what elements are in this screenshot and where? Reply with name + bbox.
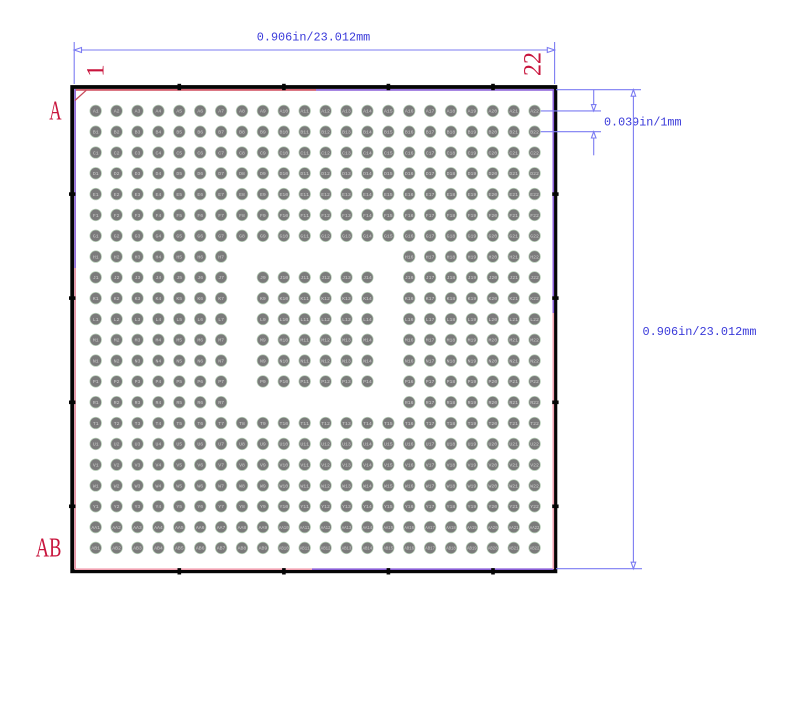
svg-text:B18: B18 [447, 130, 456, 136]
svg-text:J9: J9 [260, 275, 266, 281]
svg-text:AB20: AB20 [488, 546, 498, 552]
svg-text:R17: R17 [426, 400, 435, 406]
svg-text:T13: T13 [342, 421, 351, 427]
svg-text:E3: E3 [135, 192, 141, 198]
svg-text:N2: N2 [114, 358, 120, 364]
svg-text:AB22: AB22 [530, 546, 540, 552]
svg-text:P12: P12 [321, 379, 330, 385]
svg-text:L10: L10 [279, 317, 288, 323]
svg-text:B20: B20 [488, 130, 497, 136]
svg-text:P7: P7 [218, 379, 224, 385]
svg-text:C6: C6 [197, 150, 203, 156]
svg-text:AA14: AA14 [363, 525, 373, 531]
svg-text:E20: E20 [488, 192, 497, 198]
svg-text:K13: K13 [342, 296, 351, 302]
svg-text:Y6: Y6 [197, 504, 203, 510]
svg-text:Y19: Y19 [468, 504, 477, 510]
svg-text:T14: T14 [363, 421, 372, 427]
svg-text:Y15: Y15 [384, 504, 393, 510]
svg-text:P6: P6 [197, 379, 203, 385]
svg-text:W5: W5 [176, 483, 182, 489]
svg-text:A3: A3 [135, 109, 141, 115]
svg-text:C2: C2 [114, 150, 120, 156]
svg-text:P2: P2 [114, 379, 120, 385]
svg-text:V10: V10 [279, 463, 288, 469]
svg-text:D2: D2 [114, 171, 120, 177]
svg-text:G6: G6 [197, 234, 203, 240]
svg-text:J17: J17 [426, 275, 435, 281]
svg-text:AA21: AA21 [509, 525, 519, 531]
svg-text:AB9: AB9 [259, 546, 268, 552]
svg-text:AA19: AA19 [467, 525, 477, 531]
svg-text:P11: P11 [300, 379, 309, 385]
svg-text:C10: C10 [279, 150, 288, 156]
svg-text:W16: W16 [405, 483, 414, 489]
svg-text:A22: A22 [530, 109, 539, 115]
svg-text:N6: N6 [197, 358, 203, 364]
svg-text:G11: G11 [300, 234, 309, 240]
svg-text:C11: C11 [300, 150, 309, 156]
svg-text:Y5: Y5 [176, 504, 182, 510]
svg-text:C18: C18 [447, 150, 456, 156]
svg-text:N3: N3 [135, 358, 141, 364]
svg-text:J13: J13 [342, 275, 351, 281]
svg-text:L21: L21 [509, 317, 518, 323]
svg-text:A15: A15 [384, 109, 393, 115]
svg-text:D5: D5 [176, 171, 182, 177]
svg-text:B4: B4 [156, 130, 162, 136]
svg-text:W8: W8 [239, 483, 245, 489]
svg-text:F3: F3 [135, 213, 141, 219]
svg-text:L22: L22 [530, 317, 539, 323]
svg-text:M12: M12 [321, 338, 330, 344]
svg-text:AB10: AB10 [279, 546, 289, 552]
svg-text:B3: B3 [135, 130, 141, 136]
svg-text:AA3: AA3 [133, 525, 142, 531]
svg-text:AB16: AB16 [404, 546, 414, 552]
svg-text:U1: U1 [93, 442, 99, 448]
svg-text:U19: U19 [468, 442, 477, 448]
svg-text:J18: J18 [447, 275, 456, 281]
svg-text:N22: N22 [530, 358, 539, 364]
svg-text:AA4: AA4 [154, 525, 163, 531]
svg-text:AA1: AA1 [91, 525, 100, 531]
svg-text:T6: T6 [197, 421, 203, 427]
svg-text:B19: B19 [468, 130, 477, 136]
svg-text:W10: W10 [279, 483, 288, 489]
svg-text:P19: P19 [468, 379, 477, 385]
svg-text:F9: F9 [260, 213, 266, 219]
svg-text:A6: A6 [197, 109, 203, 115]
svg-text:A7: A7 [218, 109, 224, 115]
svg-text:G21: G21 [509, 234, 518, 240]
svg-text:D4: D4 [156, 171, 162, 177]
svg-text:U16: U16 [405, 442, 414, 448]
svg-text:N5: N5 [176, 358, 182, 364]
svg-text:AA10: AA10 [279, 525, 289, 531]
svg-text:N19: N19 [468, 358, 477, 364]
svg-text:AA17: AA17 [425, 525, 435, 531]
svg-text:C19: C19 [468, 150, 477, 156]
svg-text:AA12: AA12 [321, 525, 331, 531]
svg-text:AB3: AB3 [133, 546, 142, 552]
svg-text:E18: E18 [447, 192, 456, 198]
svg-text:D12: D12 [321, 171, 330, 177]
svg-text:P18: P18 [447, 379, 456, 385]
svg-text:G9: G9 [260, 234, 266, 240]
svg-text:V7: V7 [218, 463, 224, 469]
svg-text:V20: V20 [488, 463, 497, 469]
svg-text:H22: H22 [530, 254, 539, 260]
svg-text:T2: T2 [114, 421, 120, 427]
svg-text:G7: G7 [218, 234, 224, 240]
svg-text:B5: B5 [176, 130, 182, 136]
svg-text:P20: P20 [488, 379, 497, 385]
svg-text:A: A [49, 95, 62, 125]
svg-text:AA16: AA16 [404, 525, 414, 531]
svg-text:R16: R16 [405, 400, 414, 406]
svg-text:N1: N1 [93, 358, 99, 364]
svg-text:C20: C20 [488, 150, 497, 156]
svg-text:W17: W17 [426, 483, 435, 489]
svg-text:AB19: AB19 [467, 546, 477, 552]
svg-text:Y3: Y3 [135, 504, 141, 510]
svg-text:T1: T1 [93, 421, 99, 427]
svg-text:E7: E7 [218, 192, 224, 198]
svg-text:T3: T3 [135, 421, 141, 427]
svg-text:AB8: AB8 [238, 546, 247, 552]
svg-text:AA15: AA15 [384, 525, 394, 531]
svg-text:K18: K18 [447, 296, 456, 302]
svg-text:E21: E21 [509, 192, 518, 198]
svg-text:AB1: AB1 [91, 546, 100, 552]
svg-text:P22: P22 [530, 379, 539, 385]
svg-text:C8: C8 [239, 150, 245, 156]
svg-text:J3: J3 [135, 275, 141, 281]
svg-text:D10: D10 [279, 171, 288, 177]
svg-text:Y9: Y9 [260, 504, 266, 510]
svg-text:W12: W12 [321, 483, 330, 489]
svg-text:F11: F11 [300, 213, 309, 219]
svg-text:K2: K2 [114, 296, 120, 302]
svg-text:M6: M6 [197, 338, 203, 344]
svg-text:T5: T5 [176, 421, 182, 427]
svg-text:H1: H1 [93, 254, 99, 260]
svg-text:Y4: Y4 [156, 504, 162, 510]
svg-text:Y2: Y2 [114, 504, 120, 510]
svg-text:A8: A8 [239, 109, 245, 115]
svg-text:N11: N11 [300, 358, 309, 364]
svg-text:V14: V14 [363, 463, 372, 469]
svg-text:V5: V5 [176, 463, 182, 469]
svg-text:M20: M20 [488, 338, 497, 344]
svg-text:V3: V3 [135, 463, 141, 469]
svg-text:Y7: Y7 [218, 504, 224, 510]
svg-text:L4: L4 [156, 317, 162, 323]
svg-text:B15: B15 [384, 130, 393, 136]
svg-text:AB6: AB6 [196, 546, 205, 552]
svg-text:A10: A10 [279, 109, 288, 115]
svg-text:L11: L11 [300, 317, 309, 323]
svg-text:U15: U15 [384, 442, 393, 448]
svg-text:N9: N9 [260, 358, 266, 364]
svg-text:M7: M7 [218, 338, 224, 344]
svg-text:D8: D8 [239, 171, 245, 177]
svg-text:A5: A5 [176, 109, 182, 115]
svg-text:A1: A1 [93, 109, 99, 115]
svg-text:V9: V9 [260, 463, 266, 469]
svg-text:E16: E16 [405, 192, 414, 198]
svg-text:U11: U11 [300, 442, 309, 448]
svg-text:T8: T8 [239, 421, 245, 427]
svg-text:P3: P3 [135, 379, 141, 385]
svg-text:U4: U4 [156, 442, 162, 448]
svg-text:E8: E8 [239, 192, 245, 198]
svg-text:F18: F18 [447, 213, 456, 219]
svg-text:D13: D13 [342, 171, 351, 177]
svg-text:J14: J14 [363, 275, 372, 281]
svg-text:R2: R2 [114, 400, 120, 406]
svg-text:J4: J4 [156, 275, 162, 281]
svg-text:AA9: AA9 [259, 525, 268, 531]
svg-text:AA20: AA20 [488, 525, 498, 531]
svg-text:N10: N10 [279, 358, 288, 364]
svg-text:B11: B11 [300, 130, 309, 136]
svg-text:U5: U5 [176, 442, 182, 448]
svg-text:AA22: AA22 [530, 525, 540, 531]
svg-text:D20: D20 [488, 171, 497, 177]
svg-text:L3: L3 [135, 317, 141, 323]
svg-text:R22: R22 [530, 400, 539, 406]
svg-text:A4: A4 [156, 109, 162, 115]
svg-text:N12: N12 [321, 358, 330, 364]
svg-text:U2: U2 [114, 442, 120, 448]
svg-text:Y13: Y13 [342, 504, 351, 510]
svg-text:J19: J19 [468, 275, 477, 281]
svg-text:K20: K20 [488, 296, 497, 302]
svg-text:G14: G14 [363, 234, 372, 240]
svg-text:P9: P9 [260, 379, 266, 385]
svg-text:P21: P21 [509, 379, 518, 385]
svg-text:A2: A2 [114, 109, 120, 115]
svg-text:J20: J20 [488, 275, 497, 281]
svg-text:E19: E19 [468, 192, 477, 198]
svg-text:M16: M16 [405, 338, 414, 344]
svg-text:V1: V1 [93, 463, 99, 469]
svg-text:E5: E5 [176, 192, 182, 198]
svg-text:J5: J5 [176, 275, 182, 281]
svg-text:T21: T21 [509, 421, 518, 427]
svg-text:C15: C15 [384, 150, 393, 156]
svg-text:P16: P16 [405, 379, 414, 385]
svg-text:D16: D16 [405, 171, 414, 177]
svg-text:N16: N16 [405, 358, 414, 364]
svg-text:N13: N13 [342, 358, 351, 364]
svg-text:T7: T7 [218, 421, 224, 427]
svg-text:F10: F10 [279, 213, 288, 219]
svg-text:L20: L20 [488, 317, 497, 323]
svg-text:F17: F17 [426, 213, 435, 219]
svg-text:E2: E2 [114, 192, 120, 198]
svg-text:C17: C17 [426, 150, 435, 156]
svg-text:T9: T9 [260, 421, 266, 427]
svg-text:Y16: Y16 [405, 504, 414, 510]
svg-text:V19: V19 [468, 463, 477, 469]
svg-text:AB14: AB14 [363, 546, 373, 552]
svg-text:V8: V8 [239, 463, 245, 469]
svg-text:T22: T22 [530, 421, 539, 427]
svg-text:E13: E13 [342, 192, 351, 198]
svg-text:D11: D11 [300, 171, 309, 177]
svg-text:G12: G12 [321, 234, 330, 240]
svg-text:L2: L2 [114, 317, 120, 323]
svg-text:P17: P17 [426, 379, 435, 385]
svg-text:AB15: AB15 [384, 546, 394, 552]
svg-text:G20: G20 [488, 234, 497, 240]
svg-text:F15: F15 [384, 213, 393, 219]
svg-text:W7: W7 [218, 483, 224, 489]
svg-text:L6: L6 [197, 317, 203, 323]
svg-text:AA5: AA5 [175, 525, 184, 531]
svg-text:W21: W21 [509, 483, 518, 489]
svg-text:H2: H2 [114, 254, 120, 260]
svg-text:T20: T20 [488, 421, 497, 427]
svg-text:M17: M17 [426, 338, 435, 344]
svg-text:R7: R7 [218, 400, 224, 406]
svg-text:U6: U6 [197, 442, 203, 448]
svg-text:J12: J12 [321, 275, 330, 281]
svg-text:B14: B14 [363, 130, 372, 136]
svg-text:AA8: AA8 [238, 525, 247, 531]
svg-text:U22: U22 [530, 442, 539, 448]
svg-text:B1: B1 [93, 130, 99, 136]
svg-text:N21: N21 [509, 358, 518, 364]
svg-text:U13: U13 [342, 442, 351, 448]
svg-text:U9: U9 [260, 442, 266, 448]
svg-text:U8: U8 [239, 442, 245, 448]
svg-text:G13: G13 [342, 234, 351, 240]
svg-text:C9: C9 [260, 150, 266, 156]
svg-text:G4: G4 [156, 234, 162, 240]
svg-text:AB13: AB13 [342, 546, 352, 552]
svg-text:W4: W4 [156, 483, 162, 489]
svg-text:B2: B2 [114, 130, 120, 136]
svg-text:1: 1 [82, 64, 109, 77]
svg-text:V22: V22 [530, 463, 539, 469]
svg-text:L5: L5 [176, 317, 182, 323]
svg-text:L17: L17 [426, 317, 435, 323]
svg-text:N20: N20 [488, 358, 497, 364]
svg-text:C4: C4 [156, 150, 162, 156]
svg-text:Y21: Y21 [509, 504, 518, 510]
svg-text:J7: J7 [218, 275, 224, 281]
svg-text:J10: J10 [279, 275, 288, 281]
svg-text:G22: G22 [530, 234, 539, 240]
svg-text:E1: E1 [93, 192, 99, 198]
svg-text:P5: P5 [176, 379, 182, 385]
svg-text:F2: F2 [114, 213, 120, 219]
svg-text:D6: D6 [197, 171, 203, 177]
svg-text:R21: R21 [509, 400, 518, 406]
svg-text:22: 22 [520, 52, 547, 76]
svg-text:F8: F8 [239, 213, 245, 219]
svg-text:D7: D7 [218, 171, 224, 177]
svg-text:U3: U3 [135, 442, 141, 448]
svg-text:D15: D15 [384, 171, 393, 177]
svg-text:K19: K19 [468, 296, 477, 302]
svg-text:R19: R19 [468, 400, 477, 406]
svg-text:AB: AB [36, 532, 62, 562]
svg-text:D21: D21 [509, 171, 518, 177]
svg-text:C14: C14 [363, 150, 372, 156]
svg-text:F12: F12 [321, 213, 330, 219]
svg-text:P4: P4 [156, 379, 162, 385]
svg-text:R4: R4 [156, 400, 162, 406]
svg-text:Y8: Y8 [239, 504, 245, 510]
svg-text:F6: F6 [197, 213, 203, 219]
svg-text:K9: K9 [260, 296, 266, 302]
svg-text:P14: P14 [363, 379, 372, 385]
svg-text:A20: A20 [488, 109, 497, 115]
svg-text:J6: J6 [197, 275, 203, 281]
svg-text:V2: V2 [114, 463, 120, 469]
svg-text:B6: B6 [197, 130, 203, 136]
svg-text:M2: M2 [114, 338, 120, 344]
svg-text:V6: V6 [197, 463, 203, 469]
svg-text:Y17: Y17 [426, 504, 435, 510]
svg-text:H3: H3 [135, 254, 141, 260]
svg-text:0.039in/1mm: 0.039in/1mm [604, 116, 682, 130]
svg-text:AA13: AA13 [342, 525, 352, 531]
svg-text:K17: K17 [426, 296, 435, 302]
svg-text:AA6: AA6 [196, 525, 205, 531]
svg-text:D17: D17 [426, 171, 435, 177]
svg-text:AB21: AB21 [509, 546, 519, 552]
svg-text:0.906in/23.012mm: 0.906in/23.012mm [257, 30, 371, 44]
svg-text:W20: W20 [488, 483, 497, 489]
svg-text:L7: L7 [218, 317, 224, 323]
svg-text:G18: G18 [447, 234, 456, 240]
svg-text:U10: U10 [279, 442, 288, 448]
svg-text:N17: N17 [426, 358, 435, 364]
svg-text:G2: G2 [114, 234, 120, 240]
svg-text:AA7: AA7 [217, 525, 226, 531]
svg-text:C1: C1 [93, 150, 99, 156]
svg-text:D9: D9 [260, 171, 266, 177]
svg-text:H19: H19 [468, 254, 477, 260]
svg-text:D22: D22 [530, 171, 539, 177]
svg-text:K16: K16 [405, 296, 414, 302]
svg-text:K14: K14 [363, 296, 372, 302]
svg-text:G5: G5 [176, 234, 182, 240]
svg-text:B8: B8 [239, 130, 245, 136]
svg-text:A17: A17 [426, 109, 435, 115]
svg-text:T17: T17 [426, 421, 435, 427]
svg-text:R5: R5 [176, 400, 182, 406]
svg-text:C3: C3 [135, 150, 141, 156]
svg-text:G1: G1 [93, 234, 99, 240]
svg-text:T12: T12 [321, 421, 330, 427]
svg-text:K1: K1 [93, 296, 99, 302]
svg-text:T15: T15 [384, 421, 393, 427]
svg-text:N14: N14 [363, 358, 372, 364]
svg-text:U7: U7 [218, 442, 224, 448]
svg-text:F20: F20 [488, 213, 497, 219]
svg-text:AB4: AB4 [154, 546, 163, 552]
svg-text:H17: H17 [426, 254, 435, 260]
svg-text:H18: H18 [447, 254, 456, 260]
svg-text:F14: F14 [363, 213, 372, 219]
